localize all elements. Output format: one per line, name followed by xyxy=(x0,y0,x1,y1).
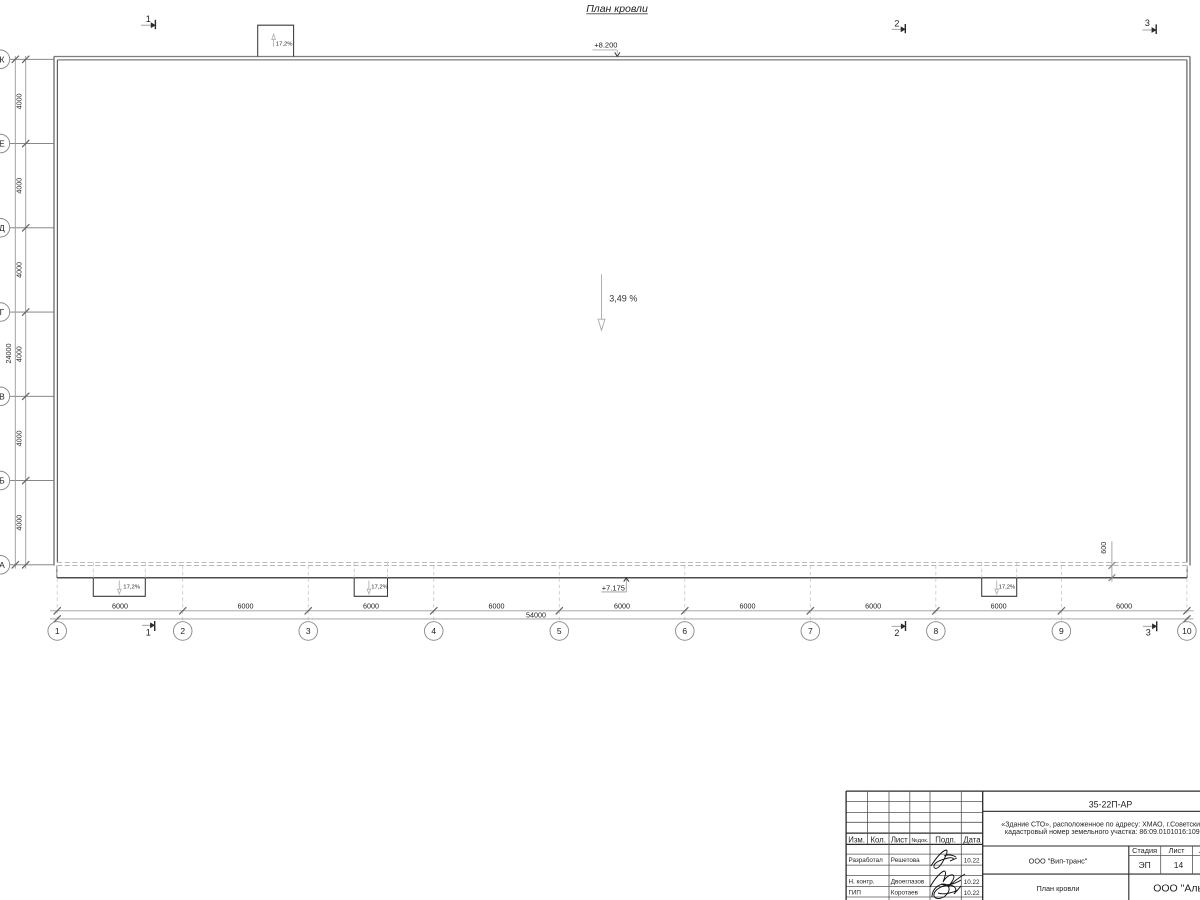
svg-text:10.22: 10.22 xyxy=(964,890,980,897)
svg-text:4000: 4000 xyxy=(15,262,24,278)
svg-text:17,2%: 17,2% xyxy=(371,584,388,590)
svg-text:2: 2 xyxy=(894,628,899,638)
svg-text:План кровли: План кровли xyxy=(586,3,648,15)
svg-text:ООО "Альянс": ООО "Альянс" xyxy=(1153,883,1200,895)
svg-text:Решетова: Решетова xyxy=(891,857,920,864)
svg-text:+7.175: +7.175 xyxy=(602,584,625,593)
svg-text:6000: 6000 xyxy=(363,602,379,611)
svg-text:1: 1 xyxy=(146,14,151,24)
svg-text:№док.: №док. xyxy=(911,838,928,844)
svg-text:1: 1 xyxy=(55,626,60,636)
svg-text:«Здание СТО», расположенное по: «Здание СТО», расположенное по адресу: Х… xyxy=(1001,821,1200,829)
svg-text:Дата: Дата xyxy=(963,835,981,844)
svg-text:54000: 54000 xyxy=(526,611,546,620)
svg-text:5: 5 xyxy=(557,626,562,636)
svg-text:10: 10 xyxy=(1182,626,1192,636)
svg-text:А: А xyxy=(0,560,5,570)
svg-text:6000: 6000 xyxy=(991,602,1007,611)
svg-text:3: 3 xyxy=(1146,628,1151,638)
svg-text:Лист: Лист xyxy=(1169,846,1186,855)
svg-text:4000: 4000 xyxy=(15,93,24,109)
svg-text:6000: 6000 xyxy=(865,602,881,611)
svg-text:3,49 %: 3,49 % xyxy=(609,294,637,304)
svg-text:ЭП: ЭП xyxy=(1138,860,1150,870)
svg-text:Разработал: Разработал xyxy=(849,856,884,864)
svg-text:Изм.: Изм. xyxy=(848,835,865,844)
svg-text:План кровли: План кровли xyxy=(1037,884,1080,893)
svg-text:кадастровый номер земельного у: кадастровый номер земельного участка: 86… xyxy=(1005,828,1200,836)
svg-text:+8.200: +8.200 xyxy=(594,41,617,50)
svg-text:10.22: 10.22 xyxy=(964,858,980,865)
svg-text:Н. контр.: Н. контр. xyxy=(849,879,875,886)
svg-text:6000: 6000 xyxy=(740,602,756,611)
svg-text:Стадия: Стадия xyxy=(1132,846,1157,855)
svg-text:4000: 4000 xyxy=(15,430,24,446)
svg-text:4000: 4000 xyxy=(15,346,24,362)
svg-text:4000: 4000 xyxy=(15,178,24,194)
svg-text:К: К xyxy=(0,54,4,64)
svg-text:4000: 4000 xyxy=(15,515,24,531)
svg-text:9: 9 xyxy=(1059,626,1064,636)
svg-text:17,2%: 17,2% xyxy=(999,584,1016,590)
svg-text:17,2%: 17,2% xyxy=(123,584,140,590)
svg-text:35-22П-АР: 35-22П-АР xyxy=(1089,800,1133,810)
svg-text:ГИП: ГИП xyxy=(849,890,862,897)
svg-text:7: 7 xyxy=(808,626,813,636)
svg-text:4: 4 xyxy=(431,626,436,636)
svg-text:ООО "Вип-транс": ООО "Вип-транс" xyxy=(1029,857,1088,866)
svg-text:6000: 6000 xyxy=(489,602,505,611)
svg-text:14: 14 xyxy=(1174,860,1184,870)
svg-text:6000: 6000 xyxy=(237,602,253,611)
svg-text:Б: Б xyxy=(0,476,5,486)
svg-text:В: В xyxy=(0,391,5,401)
svg-text:Д: Д xyxy=(0,223,5,233)
svg-text:6000: 6000 xyxy=(1116,602,1132,611)
svg-text:Кол.: Кол. xyxy=(870,835,885,844)
svg-text:2: 2 xyxy=(894,18,899,28)
svg-text:17,2%: 17,2% xyxy=(276,41,293,47)
svg-text:8: 8 xyxy=(933,626,938,636)
svg-text:Коротаев: Коротаев xyxy=(891,890,919,897)
svg-text:Подп.: Подп. xyxy=(935,835,956,844)
svg-text:6: 6 xyxy=(682,626,687,636)
svg-text:6000: 6000 xyxy=(614,602,630,611)
svg-text:3: 3 xyxy=(1145,18,1150,28)
svg-text:Лист: Лист xyxy=(891,835,908,844)
svg-text:2: 2 xyxy=(180,626,185,636)
svg-text:Е: Е xyxy=(0,139,5,149)
svg-text:Двоеглазов: Двоеглазов xyxy=(891,879,925,886)
svg-text:Г: Г xyxy=(0,307,5,317)
svg-text:10.22: 10.22 xyxy=(964,879,980,886)
svg-text:6000: 6000 xyxy=(112,602,128,611)
svg-text:24000: 24000 xyxy=(4,344,13,364)
svg-text:3: 3 xyxy=(306,626,311,636)
svg-text:600: 600 xyxy=(1099,542,1108,554)
svg-text:1: 1 xyxy=(146,627,151,637)
